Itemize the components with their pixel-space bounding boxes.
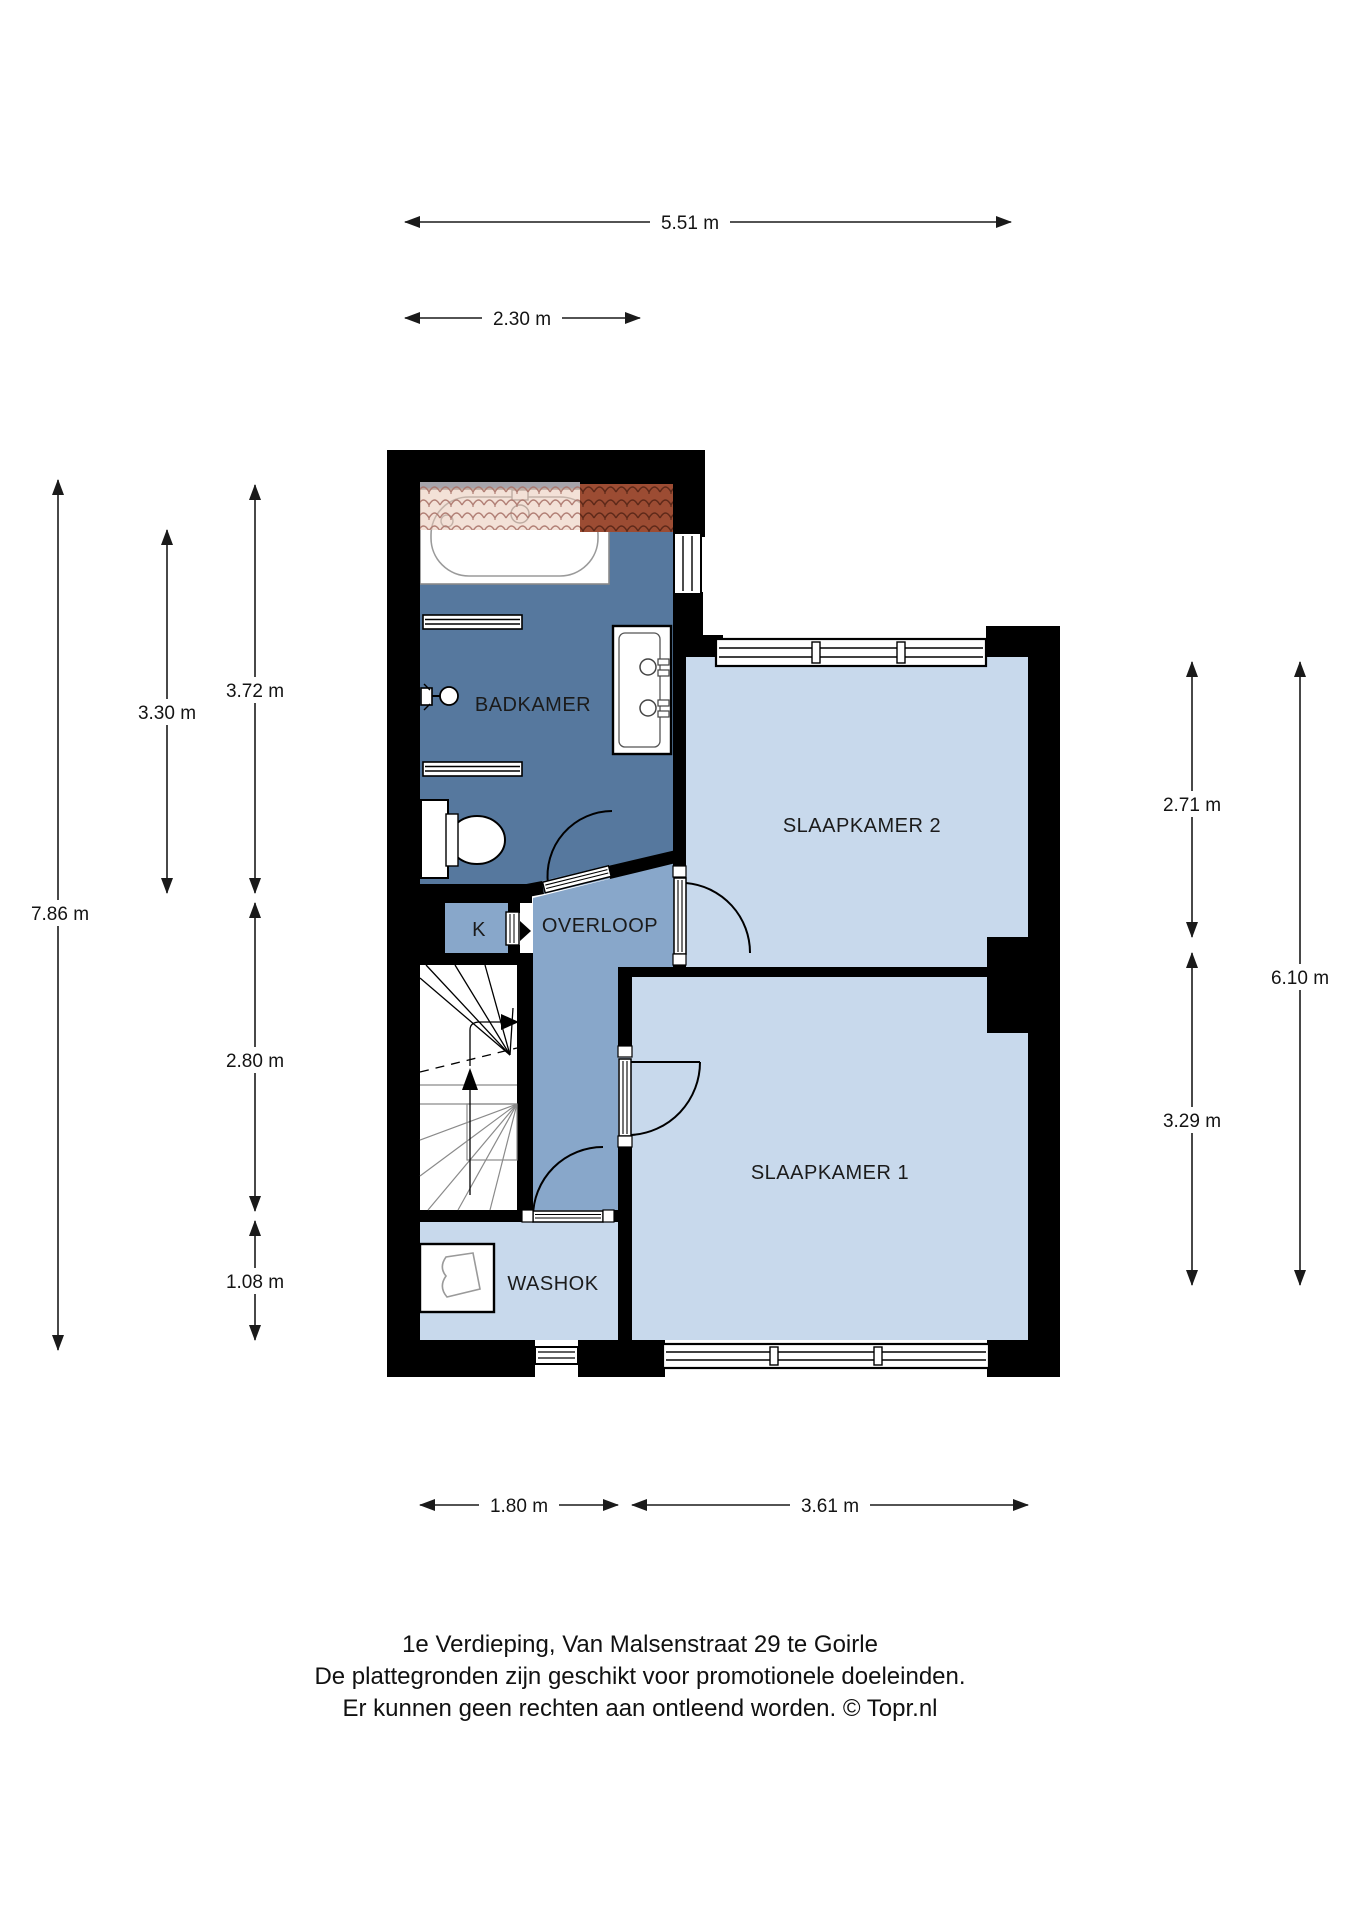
wall-kast-stub-bottom (508, 945, 520, 953)
room-slaapkamer1 (632, 977, 1028, 1340)
footer-line-3: Er kunnen geen rechten aan ontleend word… (343, 1695, 938, 1722)
footer-line-2: De plattegronden zijn geschikt voor prom… (314, 1663, 965, 1690)
dimension-left-badkamer: 3.72 m (226, 681, 284, 702)
wall-badkamer-sk2 (673, 657, 686, 877)
dimension-top-total: 5.51 m (661, 213, 719, 234)
wall-stairs-bottom (418, 1210, 533, 1222)
wall-stairs-top (420, 953, 533, 965)
room-label-washok: WASHOK (507, 1273, 598, 1295)
sink-faucet-1 (640, 659, 656, 675)
door-kast (506, 912, 531, 945)
wall-kast-left (420, 903, 445, 953)
dimension-left-badkamer-inner: 3.30 m (138, 703, 196, 724)
towel-radiator-bottom (423, 762, 522, 776)
wall-top-outer (387, 450, 583, 482)
wall-under-window (673, 592, 703, 635)
wall-tile-frame-right (673, 450, 705, 537)
wall-sk1-left-upper (618, 977, 632, 1057)
floorplan-drawing: BADKAMER SLAAPKAMER 2 OVERLOOP K SLAAPKA… (0, 0, 1358, 1920)
washing-machine (420, 1244, 494, 1312)
towel-radiator-top (423, 615, 522, 629)
room-label-badkamer: BADKAMER (475, 694, 591, 716)
dimension-right-slaapkamer2: 2.71 m (1163, 795, 1221, 816)
sink-faucet-2 (640, 700, 656, 716)
room-label-kast: K (472, 919, 486, 941)
wall-sk2-top-right (986, 626, 1028, 657)
window-badkamer (674, 533, 701, 594)
window-slaapkamer1 (663, 1344, 989, 1368)
wall-right-outer (1028, 626, 1060, 1377)
dimension-top-badkamer: 2.30 m (493, 309, 551, 330)
dimension-left-washok: 1.08 m (226, 1272, 284, 1293)
window-washok (535, 1347, 578, 1364)
wall-bottom-3 (987, 1340, 1060, 1377)
dimension-bottom-washok: 1.80 m (490, 1496, 548, 1517)
room-slaapkamer2 (686, 657, 1028, 967)
room-label-slaapkamer2: SLAAPKAMER 2 (783, 815, 941, 837)
dimension-right-slaapkamer1: 3.29 m (1163, 1111, 1221, 1132)
sink (613, 626, 671, 754)
dimension-right-total: 6.10 m (1271, 968, 1329, 989)
dimension-bottom-slaapkamer1: 3.61 m (801, 1496, 859, 1517)
footer: 1e Verdieping, Van Malsenstraat 29 te Go… (314, 1631, 965, 1722)
room-label-slaapkamer1: SLAAPKAMER 1 (751, 1162, 909, 1184)
wall-stairs-right (517, 965, 533, 1210)
floorplan-page: BADKAMER SLAAPKAMER 2 OVERLOOP K SLAAPKA… (0, 0, 1358, 1920)
wall-sk2-sk1 (618, 967, 987, 977)
window-slaapkamer2 (716, 639, 986, 666)
wall-left-outer (387, 450, 420, 1377)
wall-badkamer-bottom (420, 884, 532, 903)
wall-bottom-1 (387, 1340, 535, 1377)
wall-sk1-left-lower (618, 1137, 632, 1340)
roof-tiles (420, 482, 674, 532)
footer-line-1: 1e Verdieping, Van Malsenstraat 29 te Go… (402, 1631, 878, 1658)
wall-chimney (987, 937, 1028, 1033)
wall-bottom-2 (578, 1340, 665, 1377)
room-label-overloop: OVERLOOP (542, 915, 658, 937)
dimension-left-trap: 2.80 m (226, 1051, 284, 1072)
dimension-left-total: 7.86 m (31, 904, 89, 925)
